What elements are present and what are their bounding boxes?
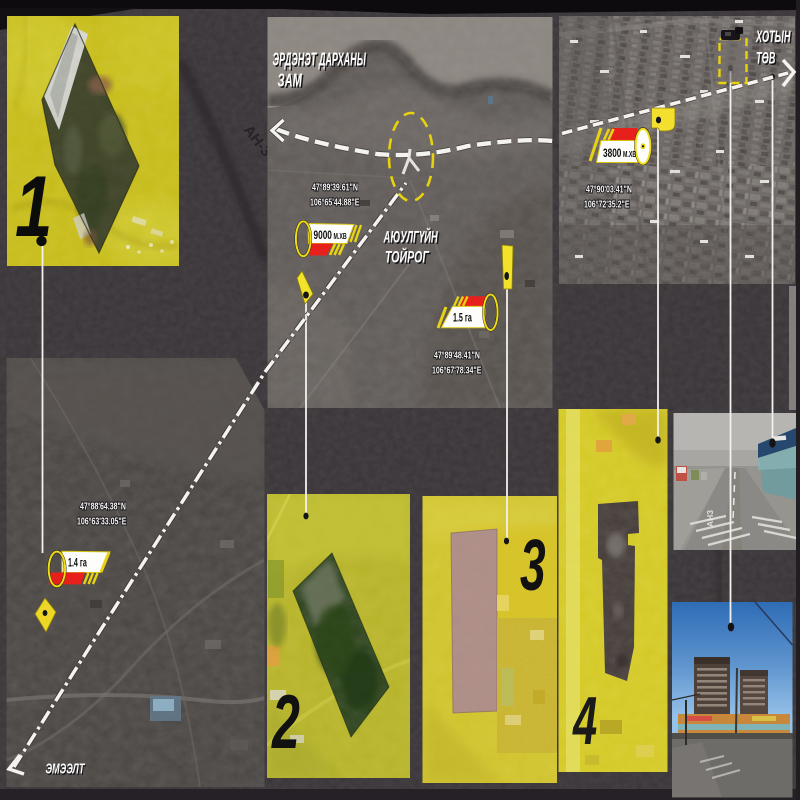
svg-text:4: 4	[572, 683, 597, 759]
svg-text:106°63'33.05"E: 106°63'33.05"E	[77, 515, 127, 527]
svg-text:106°72'35.2"E: 106°72'35.2"E	[584, 198, 630, 210]
svg-text:3: 3	[520, 524, 546, 605]
svg-text:1.5 га: 1.5 га	[453, 312, 472, 325]
svg-text:1: 1	[15, 159, 52, 255]
svg-text:47°90'03.41"N: 47°90'03.41"N	[586, 183, 632, 195]
svg-text:ТӨВ: ТӨВ	[756, 49, 776, 68]
svg-text:106°67'78.34"E: 106°67'78.34"E	[432, 364, 482, 376]
svg-text:1.4 га: 1.4 га	[68, 557, 87, 570]
svg-text:2: 2	[271, 680, 300, 765]
svg-text:М.ХВ: М.ХВ	[334, 233, 347, 241]
svg-text:47°89'39.61"N: 47°89'39.61"N	[312, 181, 358, 193]
svg-text:3800: 3800	[603, 148, 622, 161]
svg-text:М.ХВ: М.ХВ	[623, 151, 636, 159]
svg-text:АЮУЛГҮЙН: АЮУЛГҮЙН	[383, 227, 438, 247]
svg-text:ЭРДЭНЭТ ДАРХАНЫ: ЭРДЭНЭТ ДАРХАНЫ	[273, 50, 367, 70]
svg-text:АН3: АН3	[705, 510, 715, 527]
svg-text:ТОЙРОГ: ТОЙРОГ	[385, 246, 430, 266]
svg-text:ЗАМ: ЗАМ	[278, 71, 303, 92]
svg-text:ЭМЭЭЛТ: ЭМЭЭЛТ	[46, 760, 86, 777]
svg-text:ХОТЫН: ХОТЫН	[755, 27, 790, 46]
svg-text:9000: 9000	[314, 230, 333, 243]
svg-text:47°89'48.41"N: 47°89'48.41"N	[434, 349, 480, 361]
svg-text:106°65'44.88"E: 106°65'44.88"E	[310, 196, 360, 208]
svg-text:47°88'64.38"N: 47°88'64.38"N	[80, 500, 126, 512]
